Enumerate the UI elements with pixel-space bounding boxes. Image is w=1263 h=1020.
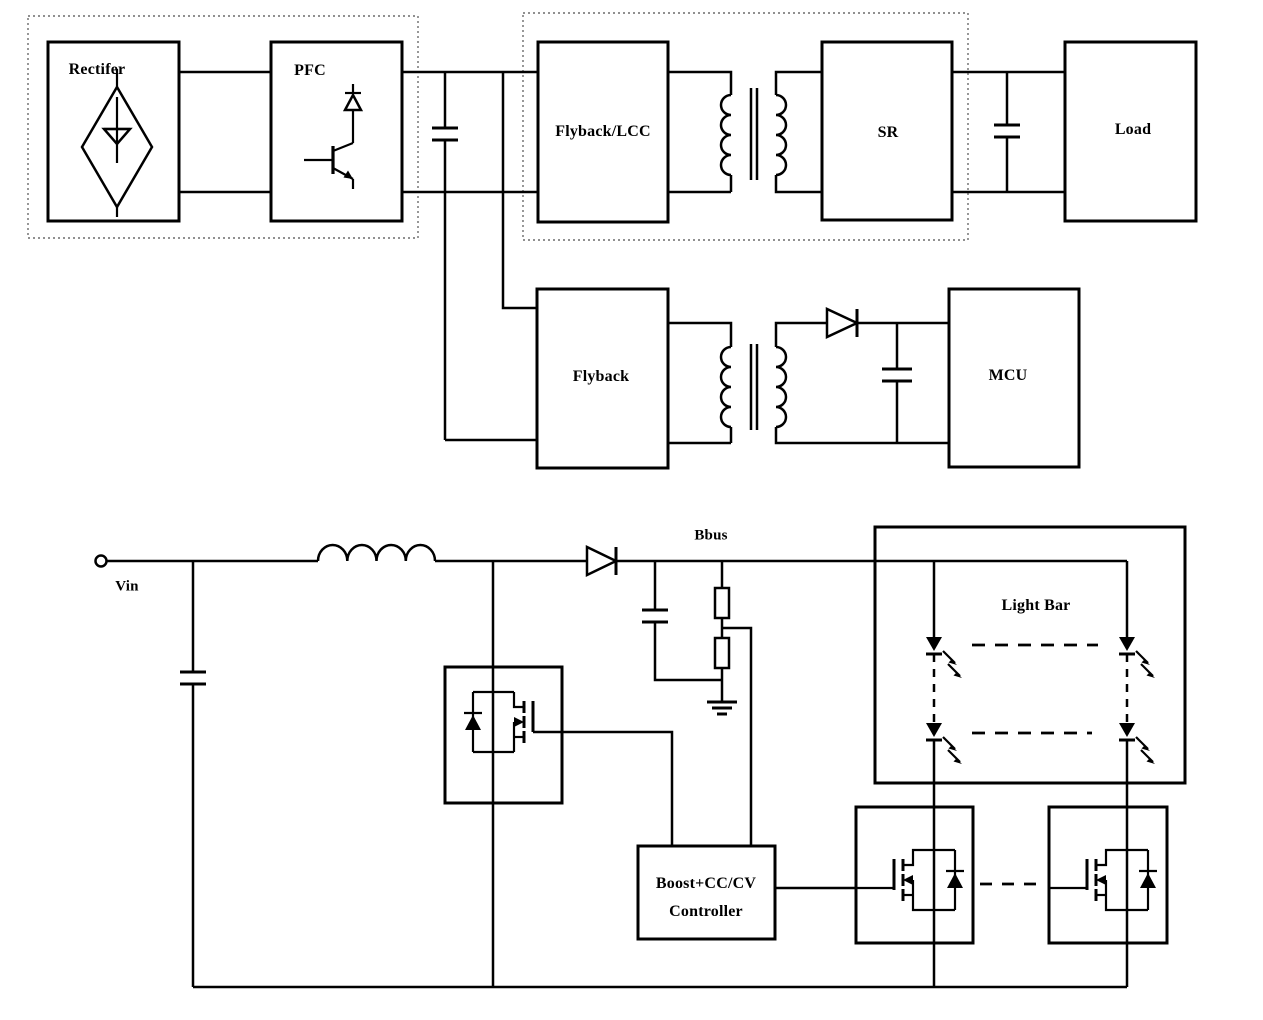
controller-label-line2: Controller [669, 903, 743, 921]
controller-label-line1: Boost+CC/CV [656, 875, 756, 893]
led-icon [926, 723, 942, 737]
input-capacitor-icon [180, 561, 206, 987]
block-label-rectifier: Rectifer [69, 61, 126, 79]
dimming-mosfet-box-2 [1049, 807, 1167, 943]
circuit-schematic [0, 0, 1263, 1020]
led-icon [1119, 637, 1135, 651]
bridge-rectifier-icon [82, 69, 152, 217]
dimming-mosfet-icon-2 [1049, 850, 1157, 910]
boost-gate-wire [533, 732, 672, 846]
mcu-capacitor-icon [882, 323, 912, 443]
block-label-flyback-lcc: Flyback/LCC [555, 123, 651, 141]
pfc-transistor-icon [304, 84, 361, 189]
dimming-mosfet-icon-1 [856, 850, 964, 910]
dc-bus-capacitor-icon [432, 72, 458, 440]
block-label-sr: SR [878, 124, 899, 142]
sr-output-capacitor-icon [994, 72, 1020, 192]
led-string-2 [1119, 561, 1155, 987]
ground-icon [707, 702, 737, 714]
pfc-block [271, 42, 402, 221]
block-label-load: Load [1115, 121, 1151, 139]
aux-transformer-icon [668, 323, 949, 443]
bus-capacitor-icon [642, 561, 722, 680]
input-stage-dotted-group [28, 16, 418, 238]
power-supply-block-diagram: Rectifer PFC Flyback/LCC SR Load Flyback… [0, 0, 1263, 1020]
boost-mosfet-box [445, 667, 562, 803]
main-transformer-icon [668, 72, 822, 192]
block-label-pfc: PFC [294, 62, 326, 80]
net-label-vin: Vin [115, 579, 138, 596]
net-label-bbus: Bbus [694, 528, 727, 545]
block-label-mcu: MCU [989, 367, 1028, 385]
block-label-flyback: Flyback [573, 368, 630, 386]
led-string-1 [926, 561, 962, 987]
led-icon [926, 637, 942, 651]
flyback-upper-feed-wire [503, 72, 537, 308]
boost-diode-icon [587, 547, 616, 575]
feedback-tap-wire [722, 628, 751, 846]
aux-rectifier-diode-icon [827, 309, 949, 337]
boost-mosfet-icon [464, 692, 533, 752]
led-icon [1119, 723, 1135, 737]
boost-inductor-icon [318, 545, 435, 561]
feedback-resistor-bottom [715, 638, 729, 668]
vin-terminal-icon [96, 556, 107, 567]
feedback-resistor-top [715, 588, 729, 618]
block-label-light-bar: Light Bar [1002, 597, 1071, 615]
